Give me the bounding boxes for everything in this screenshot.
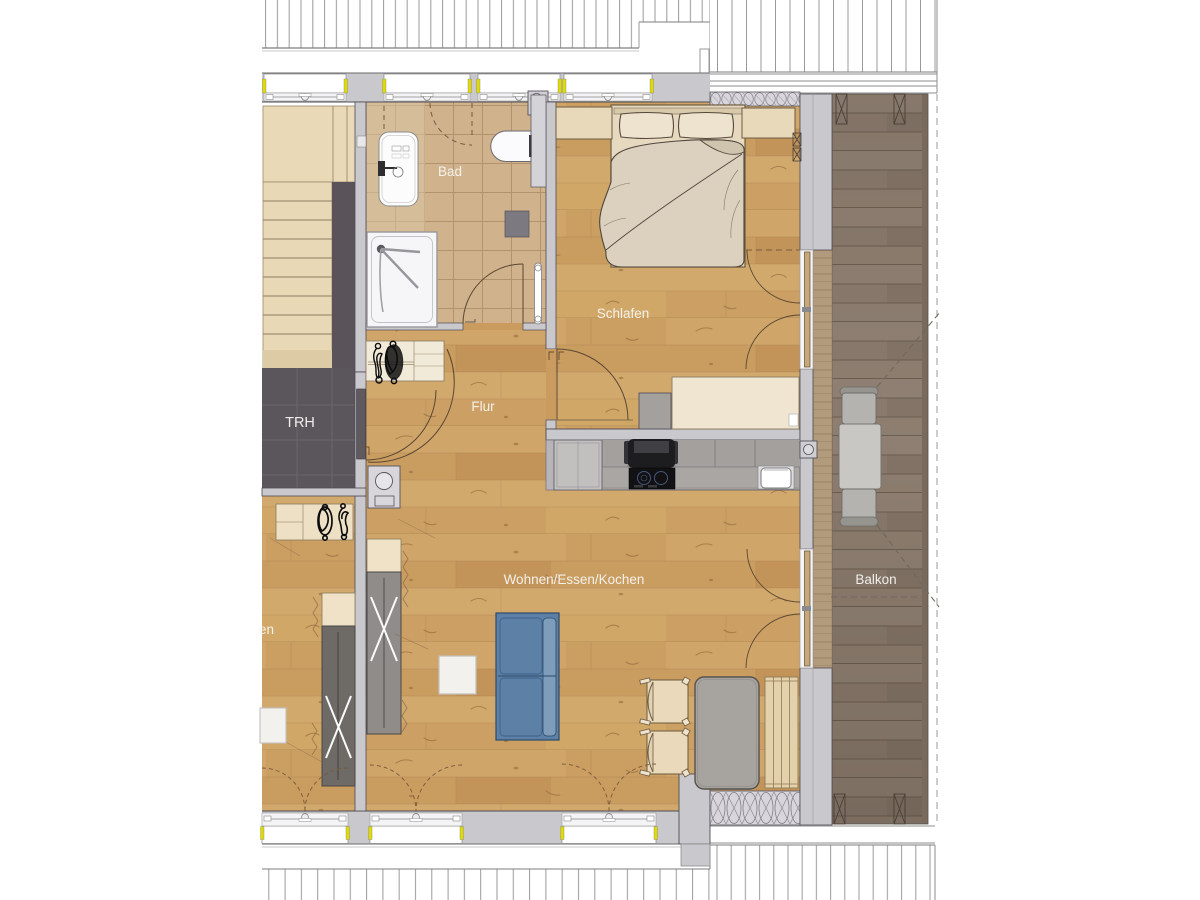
- svg-text:TRH: TRH: [285, 415, 315, 431]
- svg-text:Bad: Bad: [438, 164, 462, 179]
- svg-text:Schlafen: Schlafen: [597, 306, 650, 321]
- svg-text:en: en: [259, 622, 274, 637]
- svg-text:Wohnen/Essen/Kochen: Wohnen/Essen/Kochen: [504, 572, 645, 587]
- svg-text:Balkon: Balkon: [855, 572, 896, 587]
- svg-text:Flur: Flur: [471, 399, 495, 414]
